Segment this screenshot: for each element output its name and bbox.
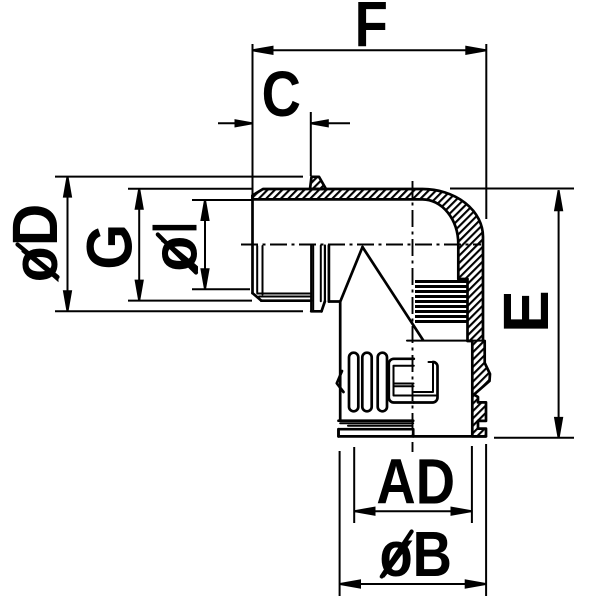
svg-text:F: F	[355, 0, 388, 60]
svg-text:øI: øI	[139, 219, 211, 271]
svg-text:AD: AD	[376, 445, 455, 517]
svg-text:øB: øB	[379, 518, 452, 590]
svg-text:C: C	[262, 58, 301, 130]
svg-text:G: G	[74, 224, 146, 270]
svg-text:E: E	[490, 290, 562, 333]
svg-text:øD: øD	[0, 204, 72, 282]
